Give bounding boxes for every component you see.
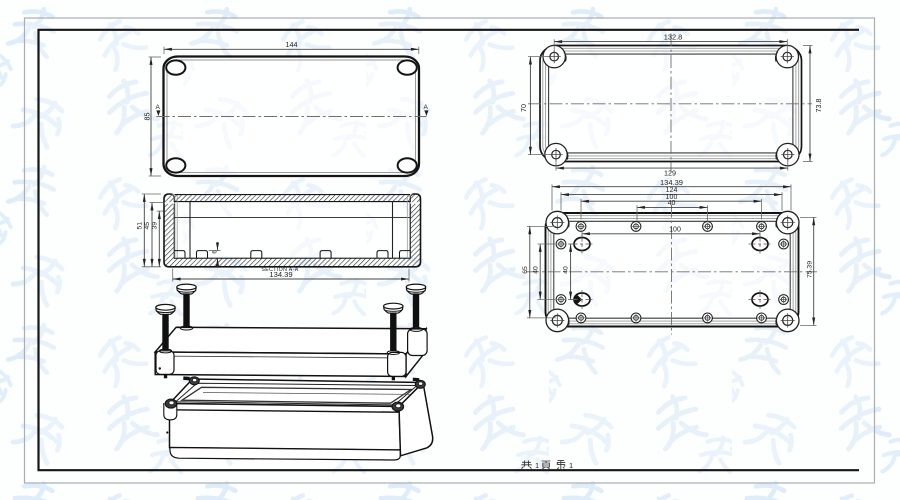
svg-text:51: 51 — [137, 222, 144, 230]
svg-text:70: 70 — [519, 104, 528, 112]
svg-text:134.39: 134.39 — [269, 270, 292, 279]
svg-text:129: 129 — [664, 168, 676, 177]
svg-text:134.39: 134.39 — [660, 178, 683, 187]
svg-text:132.8: 132.8 — [664, 33, 683, 42]
svg-text:1: 1 — [569, 461, 573, 470]
svg-text:45: 45 — [144, 222, 151, 230]
svg-text:40: 40 — [532, 266, 539, 274]
svg-text:65: 65 — [522, 266, 529, 274]
svg-text:39: 39 — [151, 222, 158, 230]
svg-text:75.39: 75.39 — [807, 261, 814, 278]
svg-text:A: A — [424, 104, 429, 111]
svg-text:144: 144 — [286, 40, 298, 49]
svg-text:73.8: 73.8 — [814, 99, 823, 113]
svg-text:40: 40 — [668, 200, 676, 207]
svg-text:A: A — [156, 104, 161, 111]
svg-text:1: 1 — [535, 461, 539, 470]
svg-text:85: 85 — [142, 113, 151, 121]
svg-text:100: 100 — [669, 226, 681, 233]
svg-text:40: 40 — [563, 266, 570, 274]
